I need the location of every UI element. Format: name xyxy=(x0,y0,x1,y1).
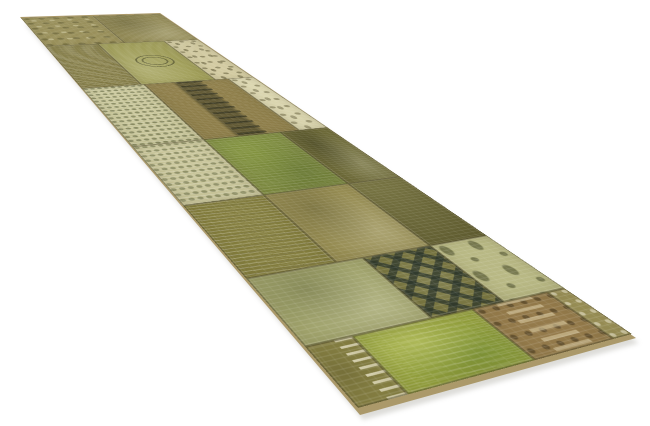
photo-canvas xyxy=(0,0,650,426)
